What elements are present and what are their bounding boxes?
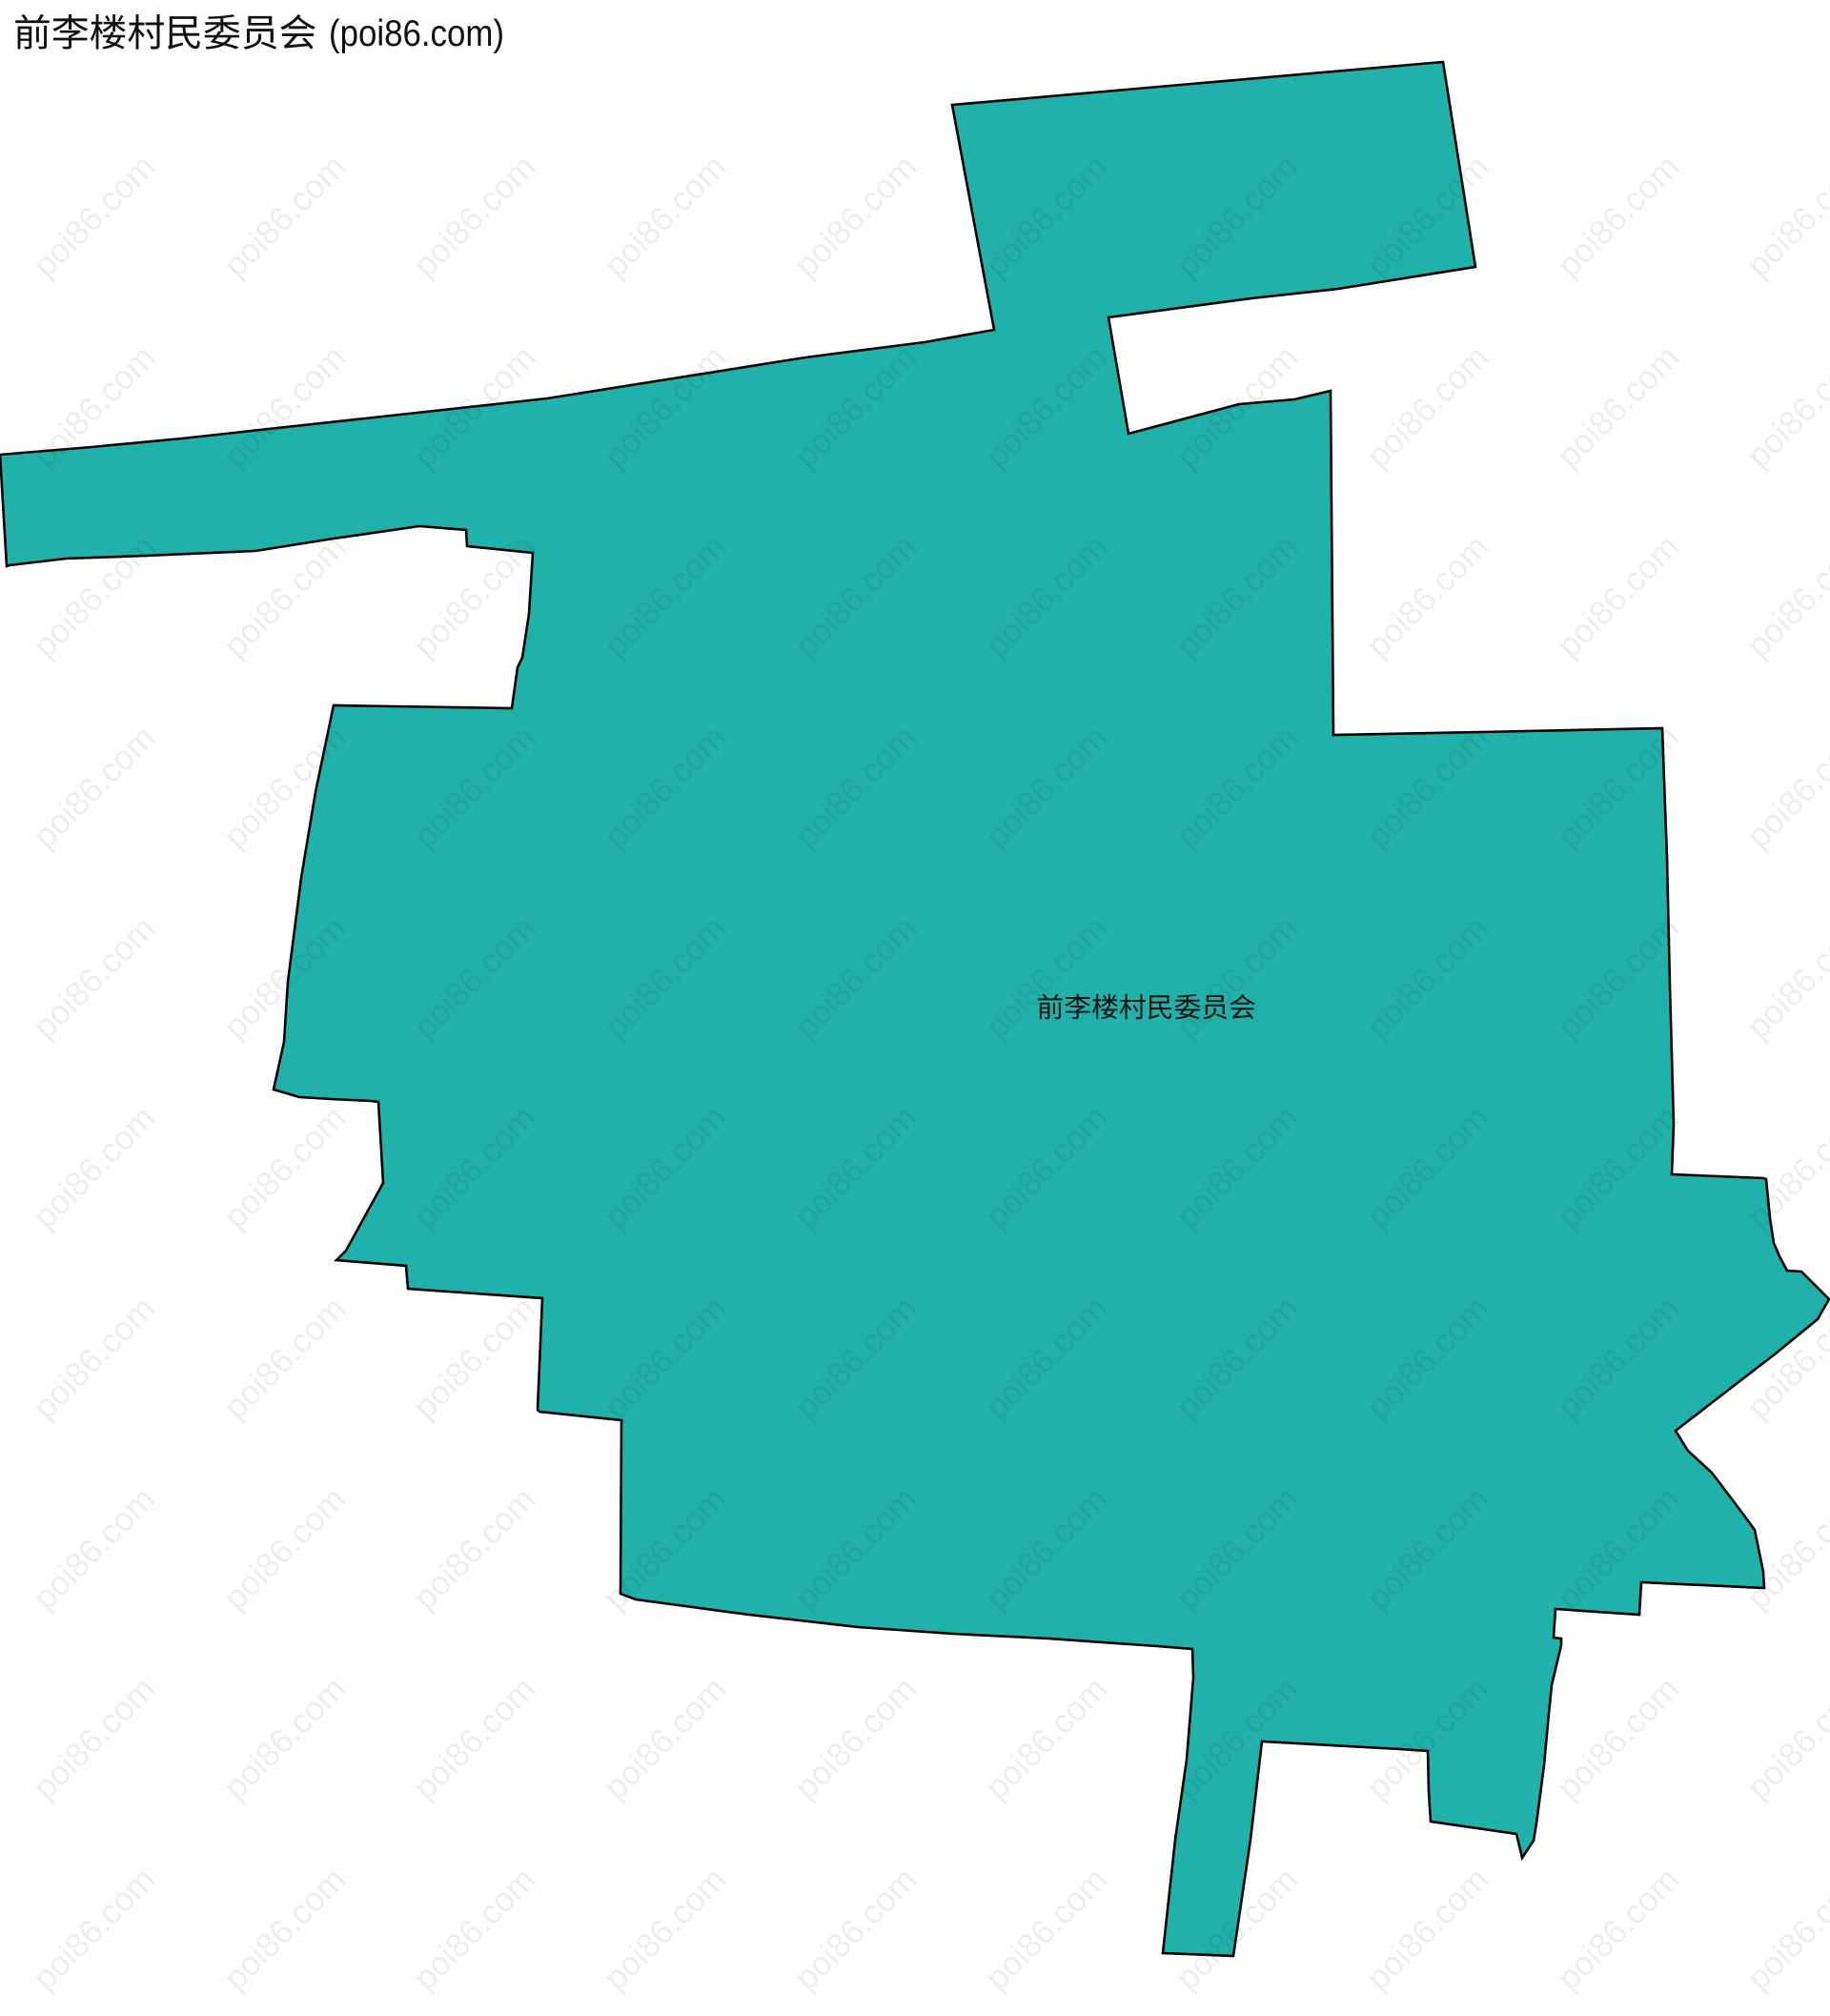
svg-text:(poi86.com): (poi86.com)	[329, 13, 504, 54]
